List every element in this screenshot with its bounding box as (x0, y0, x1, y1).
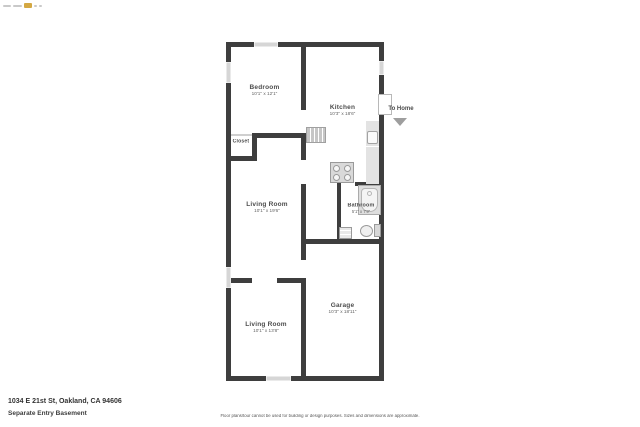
watermark-logo (3, 2, 43, 10)
room-label-garage: Garage 10'3" x 18'11" (306, 302, 379, 317)
window-bedroom-left (226, 62, 231, 83)
wall-bedroom-bottom (252, 133, 306, 138)
room-dims: 10'3" x 18'6" (314, 112, 371, 117)
room-name: Bedroom (226, 84, 303, 91)
toilet-tank (374, 224, 381, 237)
wall-bedroom-kitchen (301, 47, 306, 110)
kitchen-sink (367, 131, 378, 144)
room-label-closet: Closet (228, 139, 254, 146)
room-label-living-room-1: Living Room 10'1" x 19'6" (231, 201, 303, 216)
room-name: Closet (230, 139, 252, 145)
room-name: Garage (306, 302, 379, 309)
room-dims: 10'1" x 12'1" (234, 92, 294, 97)
wall-living-divider-left (231, 278, 252, 283)
room-label-kitchen: Kitchen 10'3" x 18'6" (306, 104, 379, 119)
room-name: Living Room (231, 201, 303, 208)
room-name: Living Room (230, 321, 302, 328)
kitchen-appliance (306, 127, 326, 143)
room-dims: 5'1" x 7'9" (347, 210, 375, 215)
room-label-living-room-2: Living Room 10'1" x 13'8" (230, 321, 302, 336)
room-name: Bathroom (343, 203, 379, 209)
stove-burner (333, 174, 340, 181)
logo-mark (3, 5, 11, 8)
room-dims: 10'1" x 19'6" (239, 209, 295, 214)
room-dims: 10'1" x 13'8" (238, 329, 294, 334)
bathroom-sink (339, 227, 352, 239)
disclaimer-text: Floor plans/tour cannot be used for buil… (90, 414, 551, 418)
arrow-down-icon (393, 118, 407, 126)
wall-right-lower (379, 114, 384, 381)
wall-closet-bottom (226, 156, 257, 161)
room-label-bathroom: Bathroom 5'1" x 7'9" (341, 203, 381, 217)
window-living-bottom (266, 376, 291, 381)
closet-door (231, 134, 252, 136)
property-address: 1034 E 21st St, Oakland, CA 94606 (8, 398, 122, 405)
wall-garage-left-a (301, 244, 306, 260)
logo-gold-mark (24, 3, 32, 8)
room-dims: 10'3" x 18'11" (314, 310, 371, 315)
logo-mark (34, 5, 37, 8)
room-label-bedroom: Bedroom 10'1" x 12'1" (226, 84, 303, 99)
stove-burner (344, 174, 351, 181)
floorplan-page: Bedroom 10'1" x 12'1" Kitchen 10'3" x 18… (0, 0, 640, 427)
toilet-bowl (360, 225, 373, 237)
stove-burner (333, 165, 340, 172)
bathtub-drain (367, 191, 372, 196)
logo-mark (13, 5, 22, 8)
kitchen-counter-seam (366, 146, 379, 147)
wall-garage-top (301, 239, 384, 244)
window-living-left (226, 267, 231, 288)
window-kitchen-right (379, 61, 384, 75)
logo-mark (39, 5, 42, 8)
floor-title: Separate Entry Basement (8, 410, 87, 417)
window-bedroom-top (254, 42, 278, 47)
wall-living-divider-right (277, 278, 306, 283)
stove-burner (344, 165, 351, 172)
stove (330, 162, 354, 183)
room-name: Kitchen (306, 104, 379, 111)
to-home-label: To Home (383, 106, 419, 112)
